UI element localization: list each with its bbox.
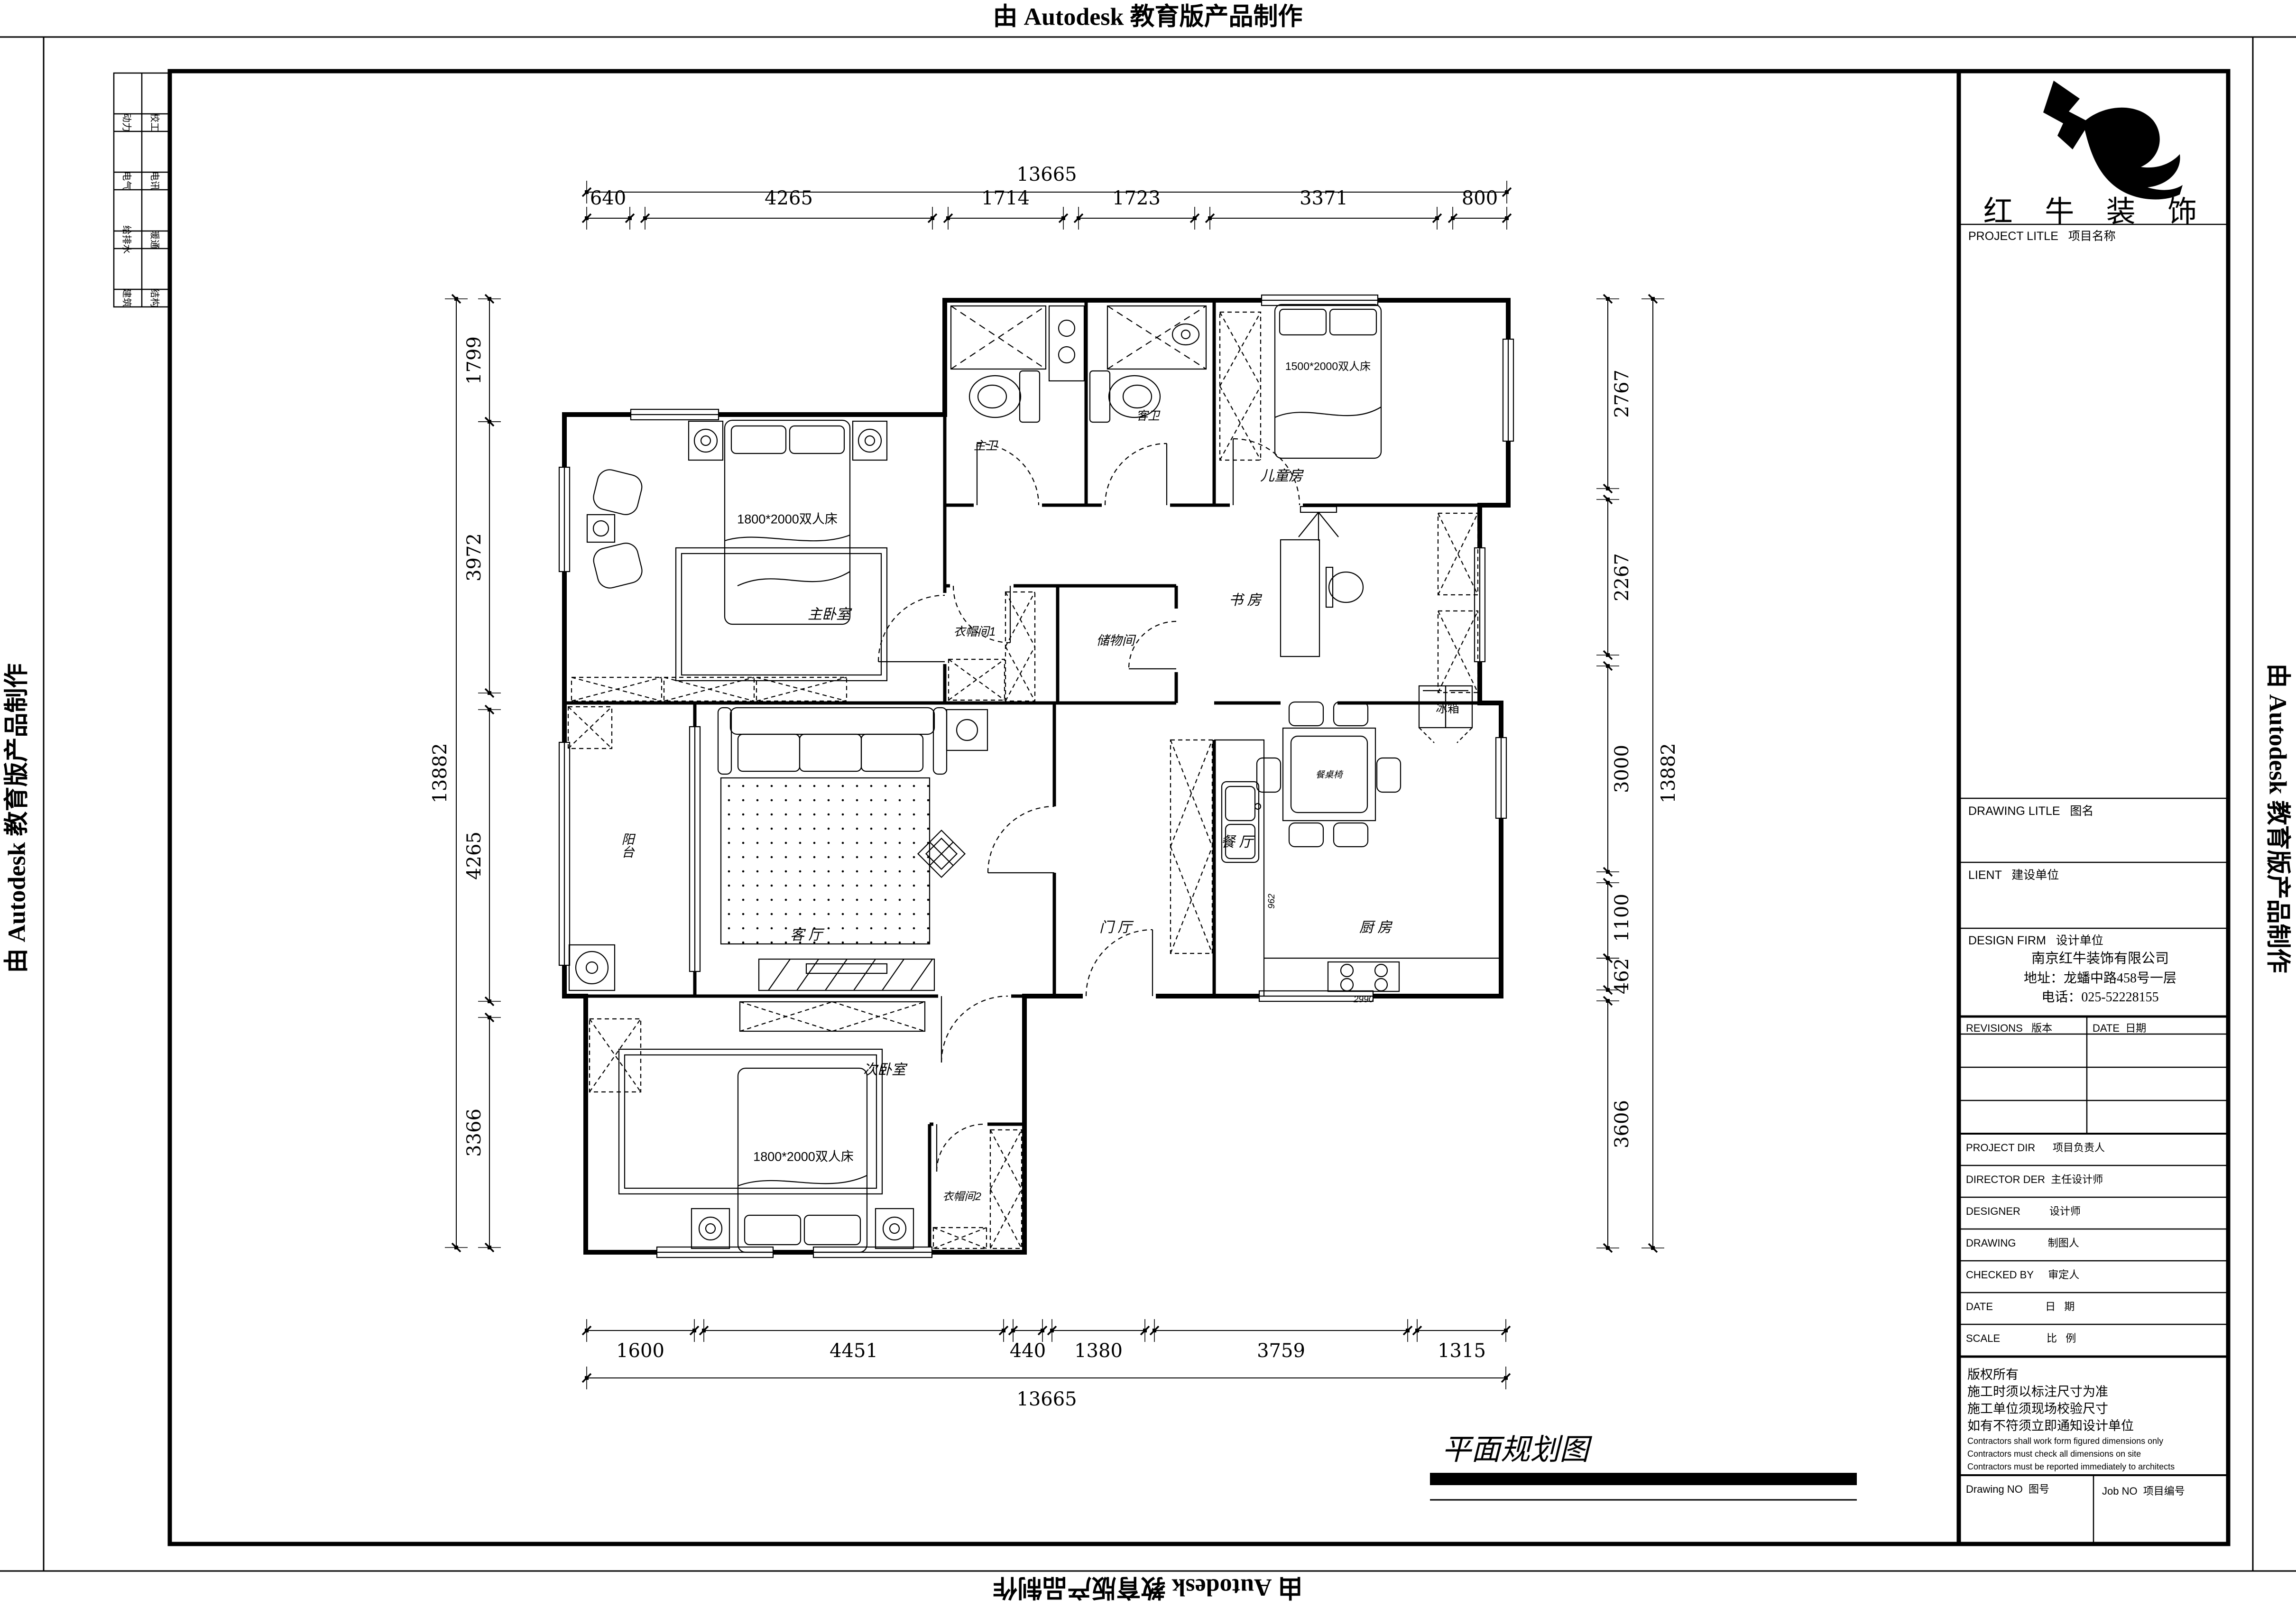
room-label-master-bedroom: 主卧室 (808, 602, 850, 623)
dim-top-4: 1723 (1112, 187, 1161, 209)
room-label-foyer: 门 厅 (1099, 915, 1132, 936)
stamp-top: 由 Autodesk 教育版产品制作 (993, 0, 1303, 32)
dim-right-total: 13882 (1658, 743, 1679, 803)
dim-bottom-2: 4451 (830, 1340, 878, 1362)
kids-wardrobe (1220, 312, 1261, 460)
stamp-left: 由 Autodesk 教育版产品制作 (0, 664, 32, 973)
master-rug (676, 548, 887, 681)
dim-left-3: 4265 (463, 832, 485, 880)
titleblock-drawing-litle: DRAWING LITLE 图名 (1968, 802, 2093, 819)
drawing-title-underline (1430, 1473, 1857, 1500)
master-nightstands (689, 421, 887, 460)
dim-right-3: 3000 (1611, 745, 1633, 793)
discipline-telecom: 电讯 (149, 171, 163, 190)
discipline-power: 动力 (121, 113, 135, 132)
sofa (718, 708, 947, 774)
discipline-hvac: 暖通 (149, 230, 163, 249)
dim-top-total: 13665 (1016, 164, 1077, 185)
room-label-balcony: 阳台 (618, 832, 636, 858)
bedroom2-nightstands (692, 1209, 913, 1248)
balcony-cabinet (568, 707, 612, 749)
dim-bottom-3: 440 (1010, 1340, 1046, 1362)
room-label-dining: 餐 厅 (1221, 830, 1253, 851)
bedroom2-rug (619, 1049, 882, 1194)
dim-top-1: 640 (590, 187, 626, 209)
dim-bottom-1: 1600 (616, 1340, 664, 1362)
discipline-check: 校工 (149, 113, 163, 132)
dim-right-1: 2767 (1611, 370, 1633, 418)
room-label-bedroom2: 次卧室 (863, 1058, 906, 1079)
dim-bottom-5: 3759 (1257, 1340, 1305, 1362)
dim-left-4: 3366 (463, 1109, 485, 1157)
titleblock-designer: DESIGNER 设计师 (1966, 1203, 2081, 1218)
corridor-light (1299, 507, 1338, 541)
dim-bottom-6: 1315 (1438, 1340, 1486, 1362)
room-label-closet2: 衣帽间2 (942, 1187, 981, 1203)
copyright-en-3: Contractors must be reported immediately… (1967, 1462, 2175, 1472)
side-table (947, 710, 987, 750)
titleblock-date-row: DATE 日 期 (1966, 1298, 2075, 1313)
titleblock-client: LIENT 建设单位 (1968, 866, 2059, 883)
copyright-en-2: Contractors must check all dimensions on… (1967, 1449, 2141, 1459)
titleblock-job-no: Job NO 项目编号 (2102, 1483, 2185, 1498)
toilet-master-bath (969, 371, 1040, 422)
label-kids-bed-size: 1500*2000双人床 (1285, 357, 1371, 373)
titleblock-checked-by: CHECKED BY 审定人 (1966, 1266, 2079, 1282)
titleblock-drawing-person: DRAWING 制图人 (1966, 1235, 2079, 1250)
titleblock-date-col: DATE 日期 (2093, 1020, 2146, 1035)
dim-right-4: 1100 (1611, 894, 1633, 942)
sheet-frame (0, 37, 2296, 1571)
room-label-master-bath: 主卫 (974, 436, 997, 453)
company-phone: 电话：025-52228155 (2041, 987, 2158, 1006)
dim-top-3: 1714 (981, 187, 1030, 209)
basin-guest-bath (1172, 324, 1199, 345)
foyer-shoe-cabinet (1171, 740, 1212, 953)
titleblock-scale-row: SCALE 比 例 (1966, 1330, 2076, 1345)
label-kitchen-962: 962 (1267, 894, 1277, 909)
label-bedroom2-bed-size: 1800*2000双人床 (753, 1146, 854, 1165)
dim-right-5: 462 (1611, 958, 1633, 994)
label-master-bed-size: 1800*2000双人床 (737, 509, 838, 527)
study-shelves (1438, 513, 1478, 693)
room-label-kids-room: 儿童房 (1260, 464, 1303, 485)
dim-right-6: 3606 (1611, 1100, 1633, 1148)
dim-left-2: 3972 (463, 533, 485, 582)
dim-bottom-total: 13665 (1016, 1388, 1077, 1410)
titleblock-lines (1959, 224, 2228, 1544)
kids-bed (1275, 305, 1381, 458)
doors (878, 439, 1300, 1172)
dim-right-2: 2267 (1611, 553, 1633, 601)
room-label-closet1: 衣帽间1 (954, 622, 996, 639)
label-fridge: 冰箱 (1436, 699, 1459, 716)
copyright-cn-2: 施工时须以标注尺寸为准 (1967, 1381, 2108, 1400)
kitchen-stove (1328, 962, 1399, 991)
room-label-kitchen: 厨 房 (1359, 915, 1392, 936)
dim-left-1: 1799 (463, 336, 485, 385)
drawing-title: 平面规划图 (1442, 1425, 1589, 1468)
dim-top-6: 800 (1462, 187, 1498, 209)
shower-master-bath (951, 306, 1046, 369)
titleblock-project-dir: PROJECT DIR 项目负责人 (1966, 1139, 2105, 1155)
titleblock-drawing-no: Drawing NO 图号 (1966, 1481, 2049, 1496)
stamp-right: 由 Autodesk 教育版产品制作 (2263, 664, 2296, 973)
label-dining-set: 餐桌椅 (1315, 768, 1342, 781)
titleblock-director: DIRECTOR DER 主任设计师 (1966, 1171, 2103, 1186)
copyright-cn-3: 施工单位须现场校验尺寸 (1967, 1398, 2108, 1417)
copyright-cn-1: 版权所有 (1967, 1364, 2019, 1383)
room-label-living: 客 厅 (790, 923, 822, 944)
bedroom2-console (740, 1002, 925, 1031)
copyright-cn-4: 如有不符须立即通知设计单位 (1967, 1415, 2134, 1434)
discipline-structure: 结构 (149, 288, 163, 307)
discipline-electrical: 电气 (121, 171, 135, 190)
titleblock-revisions: REVISIONS 版本 (1966, 1020, 2052, 1035)
tv-console (759, 959, 934, 990)
label-kitchen-2990: 2990 (1354, 995, 1374, 1005)
copyright-en-1: Contractors shall work form figured dime… (1967, 1436, 2163, 1446)
dim-top-2: 4265 (765, 187, 813, 209)
washing-machine (569, 945, 615, 990)
master-armchairs (587, 467, 645, 591)
brand-name: 红 牛 装 饰 (1983, 187, 2210, 230)
titleblock-project-title: PROJECT LITLE 项目名称 (1968, 227, 2116, 244)
room-label-study: 书 房 (1229, 588, 1261, 609)
discipline-architecture: 建筑 (121, 288, 135, 307)
shower-guest-bath (1107, 306, 1206, 369)
stamp-bottom: 由 Autodesk 教育版产品制作 (993, 1572, 1303, 1608)
walls (564, 300, 1508, 1252)
living-rug (721, 778, 930, 944)
room-label-storage: 储物间 (1097, 630, 1135, 649)
room-label-guest-bath: 客卫 (1136, 407, 1160, 424)
windows (559, 295, 1513, 1257)
closet1-cabinets (949, 592, 1035, 701)
dim-left-total: 13882 (429, 743, 451, 803)
company-address: 地址：龙蟠中路458号一层 (2024, 968, 2176, 987)
bath-cabinet (1049, 306, 1084, 381)
floor-plan-svg (0, 0, 2296, 1608)
dim-bottom-4: 1380 (1074, 1340, 1123, 1362)
discipline-plumbing: 给排水 (121, 225, 135, 254)
company-name: 南京红牛装饰有限公司 (2031, 947, 2169, 967)
dim-top-5: 3371 (1300, 187, 1348, 209)
drawing-sheet: 由 Autodesk 教育版产品制作 由 Autodesk 教育版产品制作 由 … (0, 0, 2296, 1608)
titleblock-design-firm: DESIGN FIRM 设计单位 (1968, 931, 2103, 948)
study-desk (1281, 540, 1363, 656)
redniu-logo (2043, 81, 2183, 200)
